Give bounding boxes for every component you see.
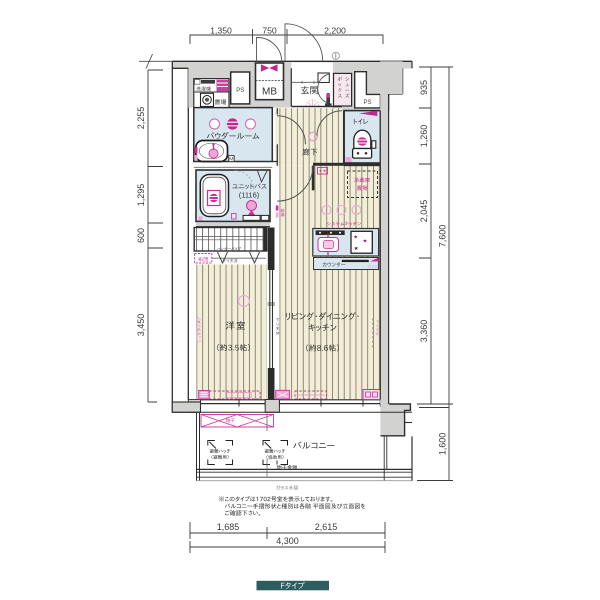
svg-text:1,260: 1,260 [419,125,429,148]
svg-text:2,615: 2,615 [315,522,338,532]
svg-text:2,255: 2,255 [136,107,146,130]
svg-text:7,600: 7,600 [438,225,448,248]
svg-text:PS: PS [363,100,371,106]
svg-text:600: 600 [136,228,146,243]
svg-text:2,045: 2,045 [419,200,429,223]
svg-text:PS: PS [236,88,244,94]
svg-text:750: 750 [262,26,277,36]
svg-text:3,450: 3,450 [136,314,146,337]
svg-text:1,685: 1,685 [217,522,240,532]
svg-text:3,360: 3,360 [419,320,429,343]
svg-text:1,350: 1,350 [210,26,232,36]
svg-text:935: 935 [419,80,429,95]
svg-text:4,300: 4,300 [276,536,299,546]
svg-text:2,200: 2,200 [324,26,346,36]
svg-text:1,295: 1,295 [136,184,146,207]
svg-text:1,600: 1,600 [438,433,448,456]
svg-text:(1116): (1116) [239,190,260,199]
svg-text:MB: MB [262,87,277,98]
